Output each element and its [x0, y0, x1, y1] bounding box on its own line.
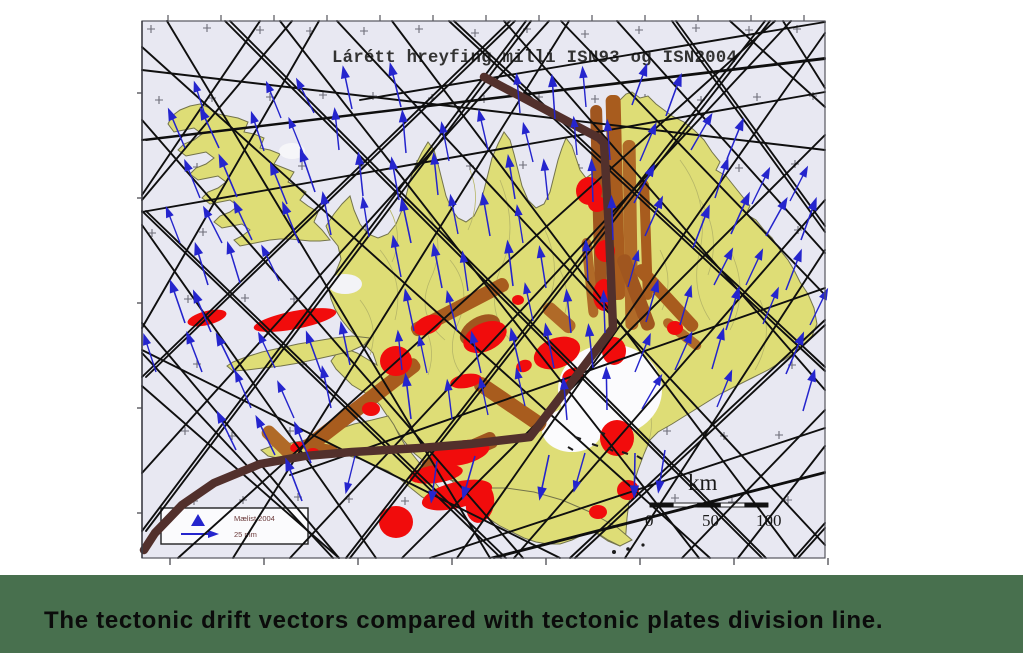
- svg-text:km: km: [688, 470, 718, 495]
- svg-text:The tectonic drift vectors com: The tectonic drift vectors compared with…: [44, 607, 883, 634]
- svg-text:Mælist 2004: Mælist 2004: [234, 514, 275, 523]
- svg-text:Lárétt hreyfing milli ISN93 og: Lárétt hreyfing milli ISN93 og ISN2004: [332, 49, 737, 68]
